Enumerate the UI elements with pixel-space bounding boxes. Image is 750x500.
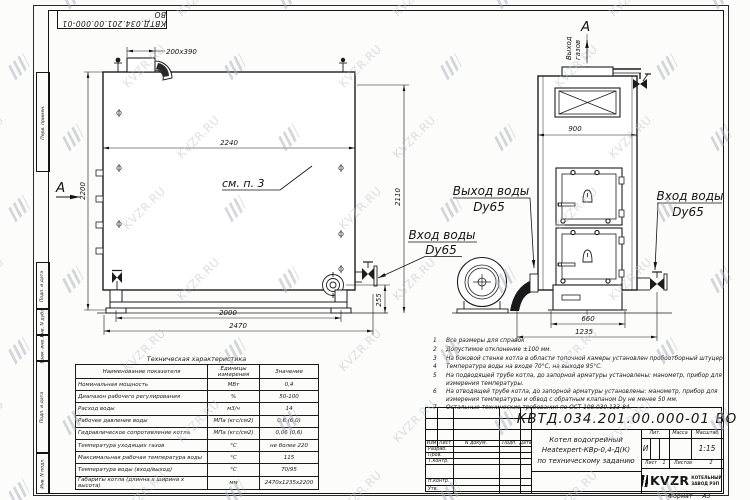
strip-perv-primen: Перв. примен. — [36, 72, 50, 172]
dim-2000: 2000 — [219, 309, 237, 317]
company-subtitle: КОТЕЛЬНЫЙ ЗАВОД РЭП — [691, 475, 722, 486]
front-view — [452, 34, 672, 316]
dim-duct: 200x390 — [166, 48, 197, 56]
scale-value: 1:15 — [691, 438, 723, 459]
tech-row: Рабочее давление водыМПа (кгс/см2)0,6 (6… — [76, 415, 319, 427]
inlet-valve — [637, 272, 667, 290]
mass-header: Масса — [669, 429, 691, 438]
tech-table-title: Техническая характеристика — [75, 355, 318, 363]
format-note: Формат А3 — [668, 493, 710, 500]
water-out-dn: Dy65 — [473, 200, 505, 214]
note-1: 1Все размеры для справок — [433, 338, 733, 345]
strip-inv-dubl: Инв. N дубл. — [36, 308, 50, 336]
dim-1235: 1235 — [575, 328, 593, 336]
dim-255: 255 — [375, 293, 383, 307]
strip-podp-data-1: Подп. и дата — [36, 262, 50, 310]
dim-2470: 2470 — [229, 322, 247, 330]
lower-door — [556, 228, 624, 285]
note-4: 4Температура воды на входе 70°С, на выхо… — [433, 364, 733, 371]
tech-row: Диапазон рабочего регулирования%50-100 — [76, 391, 319, 403]
lit-value: И — [641, 438, 650, 459]
lit-header: Лит. — [641, 429, 669, 438]
strip-inv-podl: Инв. N подл. — [36, 452, 50, 494]
water-in-left-dn: Dy65 — [425, 243, 457, 257]
water-in-right-label: Вход воды — [657, 189, 724, 203]
blower-fan — [457, 258, 508, 314]
row-nkontr: Н.контр. — [426, 478, 455, 485]
row-tkontr: Т.контр. — [426, 458, 455, 464]
strip-podp-data-2: Подп. и дата — [36, 360, 50, 454]
tech-row: Расход водым3/ч14 — [76, 403, 319, 415]
sheets-value: 2 — [706, 459, 716, 468]
sheets-label: Листов — [672, 459, 694, 468]
dim-2240: 2240 — [220, 139, 238, 147]
tech-row: Температура уходящих газов°Сне более 220 — [76, 439, 319, 451]
col-data: Дата — [520, 440, 531, 446]
strip-vzam-inv: Взам. инв. N — [36, 334, 50, 362]
note-2: 2Допустимое отклонение ±100 мм. — [433, 347, 733, 354]
corner-stamp-number: КВТД.034.201.00.000-01 ВО — [58, 11, 166, 29]
see-note-label: см. п. 3 — [222, 177, 265, 190]
corner-stamp: КВТД.034.201.00.000-01 ВО — [57, 10, 167, 29]
drawing-sheet: КВТД.034.201.00.000-01 ВО Перв. примен. … — [0, 0, 750, 500]
sheet-value: 1 — [660, 459, 668, 468]
tech-row: Максимальная рабочая температура воды°С1… — [76, 452, 319, 464]
tech-row: Габариты котла (длинна х ширина х высота… — [76, 476, 319, 489]
col-podp: Подп. — [499, 440, 520, 446]
dim-2200: 2200 — [79, 182, 87, 200]
tech-table: Наименование показателя Единицы измерени… — [75, 364, 319, 490]
doc-number: КВТД.034.201.00.000-01 ВО — [531, 408, 723, 429]
dim-900: 900 — [568, 125, 582, 133]
company-name: KVZR — [650, 473, 689, 488]
scale-header: Масштаб — [691, 429, 723, 438]
gas-out-line1: Выход — [565, 36, 573, 60]
water-in-right-dn: Dy65 — [672, 205, 704, 219]
note-6: 6На отводящей трубе котла, до запорной а… — [433, 389, 733, 403]
tech-row: Температура воды (вход/выход)°С70/95 — [76, 464, 319, 476]
tech-row: Номинальная мощностьМВт0,4 — [76, 379, 319, 391]
water-in-left-label: Вход воды — [409, 228, 476, 242]
view-a-label: А — [580, 19, 590, 35]
tech-header-row: Наименование показателя Единицы измерени… — [76, 365, 319, 379]
gas-out-line2: газов — [574, 40, 582, 60]
dim-660: 660 — [581, 315, 595, 323]
col-ndokum: N докум. — [453, 440, 499, 446]
side-valve — [355, 262, 377, 286]
water-out-label: Выход воды — [453, 184, 529, 198]
section-a-label: А — [55, 180, 65, 196]
title-block: КВТД.034.201.00.000-01 ВО Изм Лист N док… — [425, 407, 722, 492]
sheet-label: Лист — [644, 459, 658, 468]
product-name: Котел водогрейный Heatexpert-КВр-0,4-Д(К… — [532, 430, 640, 471]
technical-notes: 1Все размеры для справок 2Допустимое отк… — [433, 338, 733, 414]
row-utv: Утв. — [426, 485, 455, 493]
note-5: 5На подводящей трубе котла, до запорной … — [433, 373, 733, 387]
dim-2110: 2110 — [394, 188, 402, 206]
upper-door — [556, 168, 624, 225]
company-logo: KVZR КОТЕЛЬНЫЙ ЗАВОД РЭП — [642, 469, 722, 492]
note-3: 3На боковой стенке котла в области топоч… — [433, 356, 733, 363]
tech-row: Гидравлическое сопротивление котлаМПа (к… — [76, 427, 319, 439]
kvzr-logo-icon — [642, 475, 648, 487]
